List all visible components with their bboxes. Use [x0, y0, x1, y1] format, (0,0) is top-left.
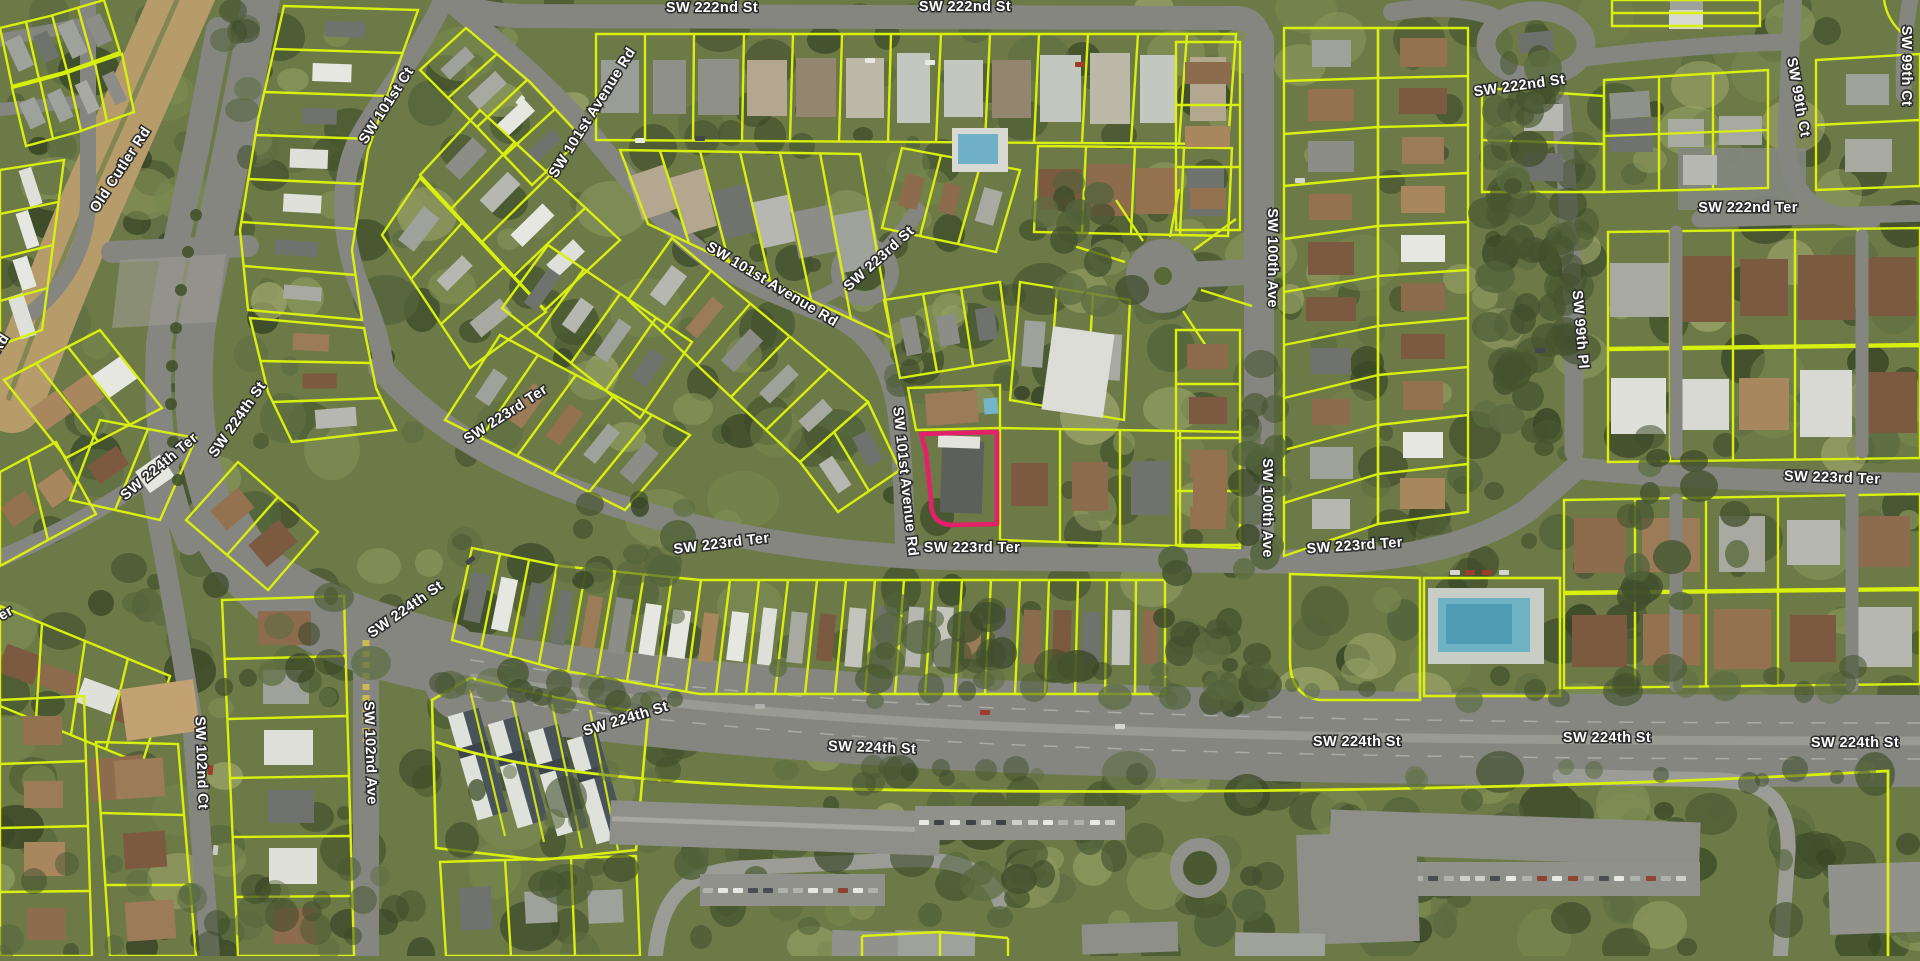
svg-text:SW 102nd Ct: SW 102nd Ct [191, 716, 210, 810]
svg-text:SW 222nd St: SW 222nd St [666, 0, 758, 16]
svg-text:SW 224th St: SW 224th St [1563, 730, 1651, 746]
svg-text:SW 100th Ave: SW 100th Ave [1264, 208, 1280, 308]
svg-text:SW 222nd St: SW 222nd St [919, 0, 1011, 15]
svg-text:SW 222nd Ter: SW 222nd Ter [1698, 200, 1798, 216]
svg-text:SW 99th Ct: SW 99th Ct [1898, 26, 1914, 107]
svg-text:SW 224th St: SW 224th St [1811, 735, 1899, 751]
svg-text:SW 223rd Ter: SW 223rd Ter [924, 540, 1020, 556]
svg-text:SW 100th Ave: SW 100th Ave [1259, 458, 1275, 558]
svg-text:SW 224th St: SW 224th St [828, 738, 917, 757]
svg-text:SW 224th St: SW 224th St [1313, 734, 1401, 750]
svg-text:SW 223rd Ter: SW 223rd Ter [1784, 468, 1881, 487]
